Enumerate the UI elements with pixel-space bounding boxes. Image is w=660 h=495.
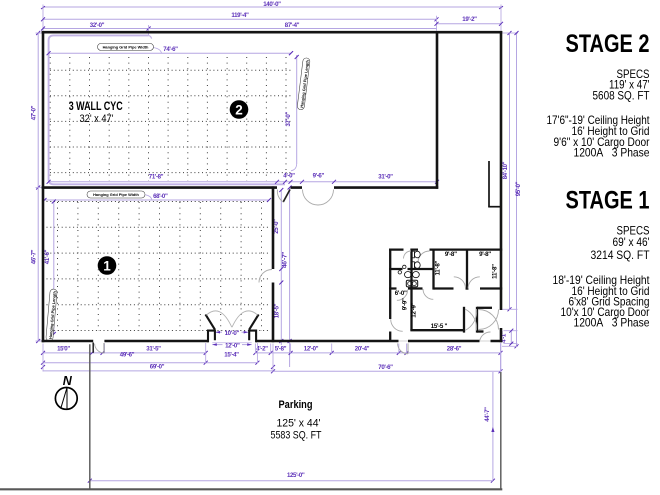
svg-text:87'-4": 87'-4" [285, 22, 300, 29]
svg-text:2: 2 [235, 103, 243, 118]
svg-text:69'-0": 69'-0" [150, 364, 165, 371]
svg-text:119'-4": 119'-4" [231, 12, 249, 19]
svg-text:Hanging Grid Pipe Width: Hanging Grid Pipe Width [93, 192, 139, 197]
svg-text:4'-0": 4'-0" [283, 172, 295, 179]
svg-text:11'-8": 11'-8" [435, 261, 442, 276]
svg-text:125'-0": 125'-0" [287, 472, 305, 479]
svg-text:46'-7": 46'-7" [282, 252, 289, 268]
svg-text:84'-10": 84'-10" [502, 161, 509, 179]
svg-text:1200A 3 Phase: 1200A 3 Phase [574, 316, 650, 330]
svg-text:15'-4": 15'-4" [224, 351, 239, 358]
svg-text:31'-5": 31'-5" [146, 346, 161, 353]
svg-text:1: 1 [103, 259, 111, 274]
svg-text:STAGE 1: STAGE 1 [566, 187, 650, 215]
svg-text:STAGE 2: STAGE 2 [566, 30, 650, 58]
svg-text:9'-6": 9'-6" [313, 172, 325, 179]
svg-text:6'-0": 6'-0" [395, 290, 407, 297]
svg-text:10'-0": 10'-0" [225, 330, 240, 337]
svg-text:12'-9": 12'-9" [411, 302, 418, 317]
svg-text:125' x 44': 125' x 44' [277, 417, 321, 429]
svg-text:68'-0": 68'-0" [153, 193, 168, 200]
svg-text:41'-6": 41'-6" [44, 249, 51, 264]
svg-text:9'-9": 9'-9" [401, 298, 408, 310]
svg-text:N: N [63, 374, 73, 388]
svg-text:49'-6": 49'-6" [120, 351, 135, 358]
svg-text:9'-8": 9'-8" [445, 251, 457, 258]
svg-text:15'0": 15'0" [57, 346, 70, 353]
svg-text:20'-4": 20'-4" [355, 346, 370, 353]
svg-text:47'-0": 47'-0" [31, 105, 38, 120]
svg-text:74'-6": 74'-6" [163, 46, 178, 53]
svg-text:44'-7": 44'-7" [484, 407, 491, 422]
svg-text:32'-0": 32'-0" [90, 22, 105, 29]
svg-text:Hanging Grid Pipe Width: Hanging Grid Pipe Width [103, 44, 149, 49]
svg-text:4'-2": 4'-2" [256, 346, 268, 353]
svg-text:Parking: Parking [279, 399, 313, 411]
svg-text:5608 SQ. FT: 5608 SQ. FT [593, 89, 651, 103]
svg-text:15'-5 ": 15'-5 " [431, 323, 448, 330]
svg-text:28'-6": 28'-6" [447, 346, 462, 353]
svg-text:31'-0": 31'-0" [378, 174, 393, 181]
svg-text:95'-0": 95'-0" [515, 181, 522, 196]
svg-text:12'-0": 12'-0" [225, 342, 240, 349]
svg-text:140'-0": 140'-0" [263, 1, 281, 8]
svg-text:46'-7": 46'-7" [31, 249, 38, 264]
svg-text:71'-8": 71'-8" [149, 174, 164, 181]
svg-text:69' x 46': 69' x 46' [613, 235, 650, 249]
svg-text:5'-8": 5'-8" [275, 346, 287, 353]
svg-text:1200A 3 Phase: 1200A 3 Phase [574, 146, 650, 160]
svg-text:5583 SQ. FT: 5583 SQ. FT [271, 429, 322, 441]
svg-text:19'-2": 19'-2" [462, 16, 477, 23]
svg-text:18'-5": 18'-5" [273, 303, 280, 318]
svg-text:12'-0": 12'-0" [304, 346, 319, 353]
svg-text:3214 SQ. FT: 3214 SQ. FT [591, 248, 651, 262]
svg-text:70'-6": 70'-6" [378, 364, 393, 371]
svg-text:9'-8": 9'-8" [479, 251, 491, 258]
svg-text:3 WALL CYC: 3 WALL CYC [69, 99, 123, 113]
svg-text:11'-8": 11'-8" [492, 264, 499, 279]
svg-text:37'-0": 37'-0" [285, 112, 292, 127]
svg-text:32' x 47': 32' x 47' [80, 113, 114, 125]
